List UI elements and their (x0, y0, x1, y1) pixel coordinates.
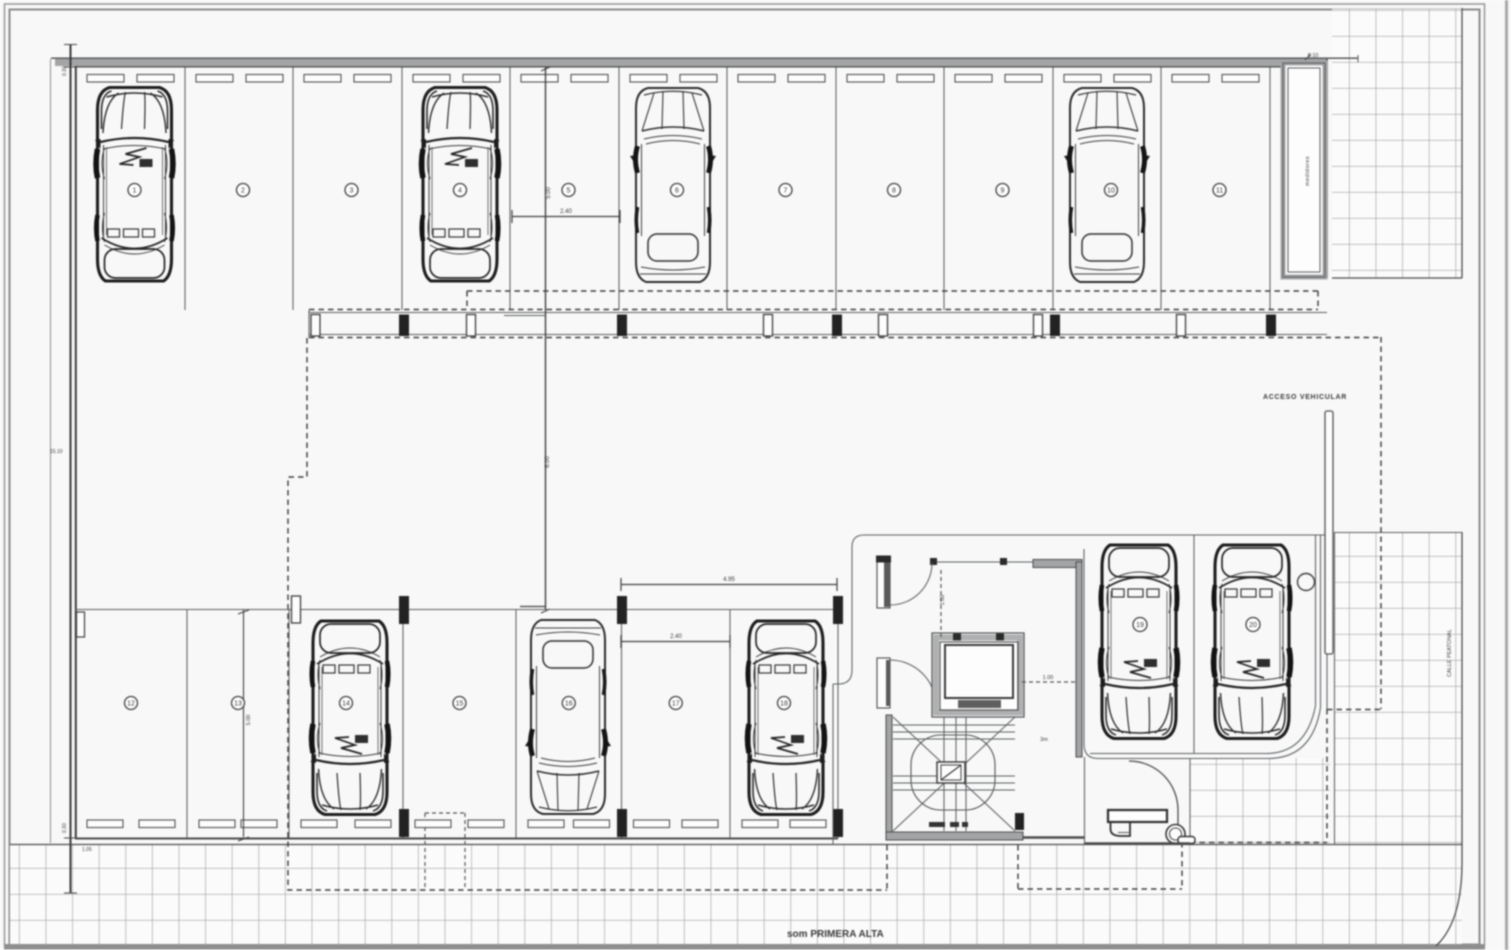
svg-text:ACCESO VEHICULAR: ACCESO VEHICULAR (1263, 394, 1347, 401)
svg-text:5: 5 (567, 188, 571, 195)
svg-text:1.00: 1.00 (940, 595, 946, 606)
svg-text:6: 6 (675, 188, 679, 195)
svg-text:18: 18 (780, 701, 788, 708)
svg-text:9: 9 (1001, 188, 1005, 195)
svg-text:5.00: 5.00 (546, 187, 552, 199)
svg-text:15: 15 (456, 701, 464, 708)
svg-text:5.00: 5.00 (246, 715, 252, 726)
svg-text:6.00: 6.00 (545, 456, 551, 468)
svg-text:15.10: 15.10 (50, 449, 63, 455)
svg-text:3m: 3m (1040, 737, 1048, 743)
svg-text:3: 3 (350, 188, 354, 195)
svg-text:medidores: medidores (1305, 156, 1311, 186)
svg-text:0.30: 0.30 (62, 823, 68, 833)
svg-text:14: 14 (342, 701, 350, 708)
svg-text:7: 7 (784, 188, 788, 195)
svg-text:12: 12 (127, 701, 135, 708)
svg-text:16: 16 (565, 701, 573, 708)
svg-text:19: 19 (1136, 622, 1144, 629)
svg-text:1.00: 1.00 (1043, 675, 1054, 681)
svg-text:0.30: 0.30 (62, 66, 68, 76)
svg-text:4: 4 (458, 188, 462, 195)
svg-text:1.05: 1.05 (82, 847, 92, 853)
svg-text:2.40: 2.40 (670, 634, 682, 640)
svg-text:som PRIMERA ALTA: som PRIMERA ALTA (787, 929, 884, 940)
svg-text:13: 13 (234, 701, 242, 708)
svg-text:20: 20 (1249, 622, 1257, 629)
svg-text:2.40: 2.40 (560, 209, 572, 215)
svg-text:CALLE PEATONAL: CALLE PEATONAL (1447, 629, 1453, 677)
svg-text:1: 1 (133, 188, 137, 195)
svg-text:8: 8 (892, 188, 896, 195)
svg-text:11: 11 (1216, 188, 1223, 195)
svg-text:17: 17 (672, 701, 680, 708)
svg-text:4.95: 4.95 (723, 577, 735, 583)
svg-text:2: 2 (241, 188, 245, 195)
svg-text:10: 10 (1107, 188, 1115, 195)
